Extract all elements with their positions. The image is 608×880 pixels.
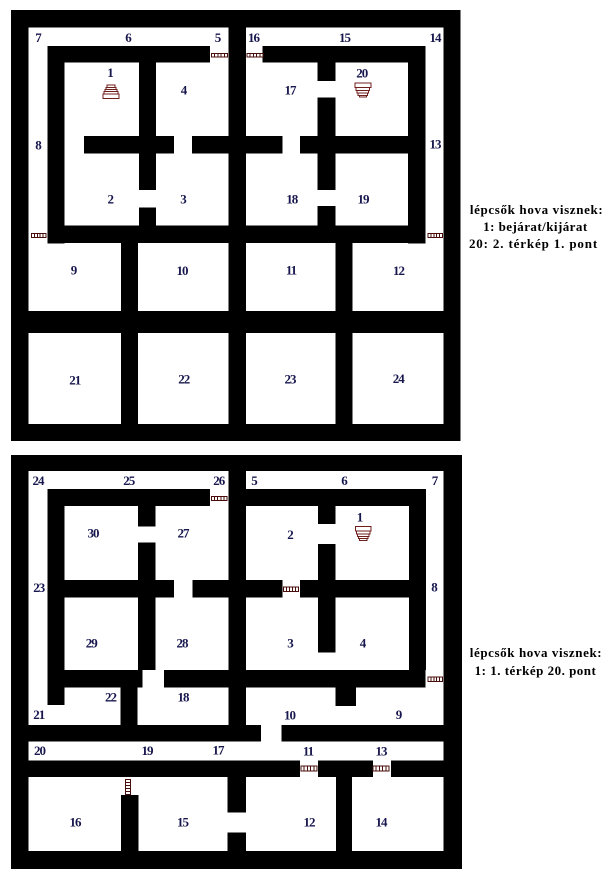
svg-text:5: 5 [215, 30, 222, 45]
svg-text:lépcsők hova visznek:: lépcsők hova visznek: [470, 202, 604, 217]
svg-text:1: 1 [357, 510, 364, 525]
svg-text:8: 8 [35, 138, 42, 153]
svg-text:9: 9 [396, 707, 403, 722]
svg-text:8: 8 [431, 580, 438, 595]
svg-text:16: 16 [70, 815, 83, 830]
svg-text:11: 11 [303, 744, 314, 759]
svg-text:10: 10 [284, 708, 296, 723]
svg-text:20: 2. térkép 1. pont: 20: 2. térkép 1. pont [469, 236, 598, 251]
svg-text:5: 5 [251, 473, 258, 488]
svg-text:19: 19 [142, 743, 155, 758]
svg-text:1: 1 [107, 65, 114, 80]
svg-text:2: 2 [108, 192, 115, 207]
svg-text:3: 3 [180, 192, 187, 207]
svg-text:22: 22 [105, 690, 117, 705]
svg-text:1: 1. térkép 20. pont: 1: 1. térkép 20. pont [475, 663, 597, 678]
svg-text:7: 7 [432, 473, 439, 488]
svg-text:17: 17 [213, 743, 226, 758]
svg-text:14: 14 [430, 30, 443, 45]
svg-text:1: bejárat/kijárat: 1: bejárat/kijárat [483, 219, 588, 234]
svg-text:10: 10 [177, 263, 189, 278]
svg-text:15: 15 [339, 30, 352, 45]
svg-text:30: 30 [88, 526, 100, 541]
svg-text:3: 3 [287, 636, 294, 651]
svg-text:12: 12 [393, 263, 405, 278]
svg-text:15: 15 [177, 815, 190, 830]
svg-text:14: 14 [376, 815, 389, 830]
svg-text:29: 29 [86, 636, 99, 651]
svg-text:9: 9 [71, 262, 78, 277]
svg-text:23: 23 [33, 580, 46, 595]
svg-text:24: 24 [33, 473, 46, 488]
svg-text:12: 12 [304, 815, 316, 830]
svg-text:13: 13 [430, 137, 443, 152]
svg-text:20: 20 [34, 743, 46, 758]
svg-text:4: 4 [360, 636, 367, 651]
svg-text:21: 21 [69, 373, 81, 388]
svg-text:4: 4 [181, 83, 188, 98]
svg-text:27: 27 [178, 526, 191, 541]
svg-text:28: 28 [177, 636, 190, 651]
svg-text:2: 2 [287, 527, 294, 542]
svg-text:18: 18 [286, 192, 299, 207]
svg-text:25: 25 [123, 473, 136, 488]
svg-text:19: 19 [358, 192, 371, 207]
svg-text:6: 6 [125, 30, 132, 45]
svg-text:22: 22 [178, 372, 190, 387]
svg-text:lépcsők hova visznek:: lépcsők hova visznek: [470, 645, 603, 660]
svg-text:20: 20 [356, 66, 368, 81]
svg-text:7: 7 [35, 30, 42, 45]
svg-text:26: 26 [213, 473, 226, 488]
svg-text:24: 24 [393, 371, 406, 386]
svg-text:13: 13 [376, 744, 389, 759]
svg-text:11: 11 [286, 263, 297, 278]
svg-text:21: 21 [33, 707, 45, 722]
svg-text:23: 23 [285, 372, 298, 387]
svg-text:6: 6 [341, 473, 348, 488]
svg-text:16: 16 [248, 30, 261, 45]
svg-text:17: 17 [285, 83, 298, 98]
svg-text:18: 18 [178, 690, 191, 705]
